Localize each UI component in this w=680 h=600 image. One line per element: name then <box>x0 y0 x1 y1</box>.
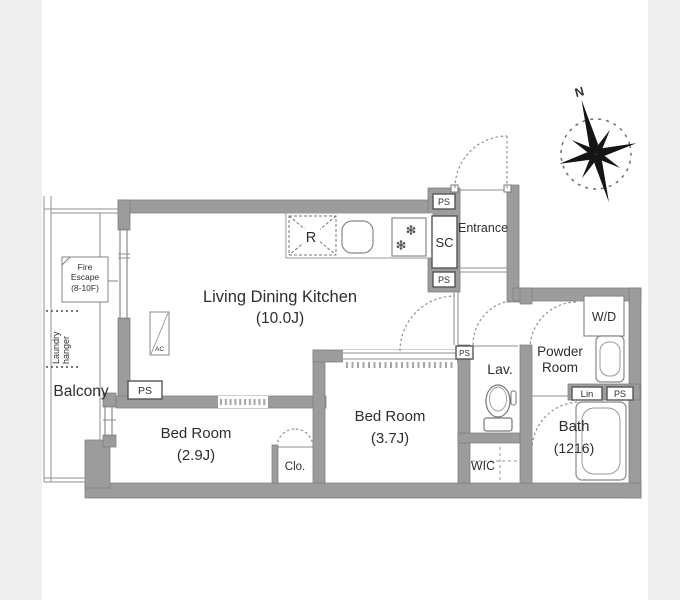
powder-room-label-1: Powder <box>537 344 583 359</box>
wall-bottom <box>85 483 641 498</box>
closet-label: Clo. <box>285 461 305 473</box>
floor-plan: R W/D <box>0 0 680 600</box>
washer-dryer: W/D <box>584 296 624 336</box>
lavatory-label: Lav. <box>487 361 512 377</box>
open-shelf-bedroom2 <box>218 396 268 408</box>
air-conditioner: AC <box>150 312 169 355</box>
wall-top <box>118 200 433 213</box>
bedroom1-size: (3.7J) <box>371 430 409 447</box>
floor-plan-page: R W/D <box>0 0 680 600</box>
wall-bedroom1-left <box>313 350 325 483</box>
sliding-door-gap <box>343 350 457 363</box>
ldk-size: (10.0J) <box>256 310 304 327</box>
balcony-label: Balcony <box>53 383 108 400</box>
bath-size: (1216) <box>554 440 594 456</box>
wall-ldk-left-top <box>118 200 130 230</box>
kitchen-counter: R <box>286 213 433 258</box>
refrigerator-label: R <box>306 230 316 246</box>
stove <box>392 218 426 256</box>
refrigerator-space: R <box>289 216 336 255</box>
shoe-closet-label: SC <box>435 235 453 250</box>
wall-lav-wic-divider <box>458 433 520 443</box>
fire-escape-label-2: Escape <box>71 272 100 282</box>
linen-label: Lin <box>581 389 594 400</box>
bedroom2-label: Bed Room <box>161 425 232 442</box>
wall-bedroom2-left-low <box>103 435 116 447</box>
laundry-hanger-label-1: Laundry <box>51 331 61 364</box>
bedroom1-label: Bed Room <box>355 408 426 425</box>
wic-label: WIC <box>471 459 495 473</box>
wall-lav-left <box>458 345 470 483</box>
fire-escape-label-1: Fire <box>78 262 93 272</box>
ps-label: PS <box>138 385 152 397</box>
wall-powder-left-stub <box>520 288 532 304</box>
sliding-door-bedroom1 <box>343 350 457 365</box>
bath-label: Bath <box>559 418 590 435</box>
ps-label: PS <box>614 389 626 399</box>
bedroom2-size: (2.9J) <box>177 447 215 464</box>
kitchen-sink <box>342 221 373 253</box>
wall-entrance-right <box>507 185 519 302</box>
entrance-label: Entrance <box>458 221 508 235</box>
washer-dryer-label: W/D <box>592 310 616 324</box>
ac-label: AC <box>155 346 164 353</box>
powder-room-label-2: Room <box>542 360 578 375</box>
ps-label: PS <box>438 275 450 285</box>
page-margin-left <box>0 0 42 600</box>
page-margin-right <box>648 0 680 600</box>
fire-escape-label-3: (8-10F) <box>71 283 99 293</box>
ldk-label: Living Dining Kitchen <box>203 288 357 306</box>
wall-closet-left <box>272 445 278 483</box>
ps-label: PS <box>438 197 450 207</box>
powder-sink <box>596 336 624 382</box>
laundry-hanger-label-2: hanger <box>61 336 71 364</box>
wall-bath-left <box>520 345 532 483</box>
ps-label: PS <box>459 349 470 358</box>
